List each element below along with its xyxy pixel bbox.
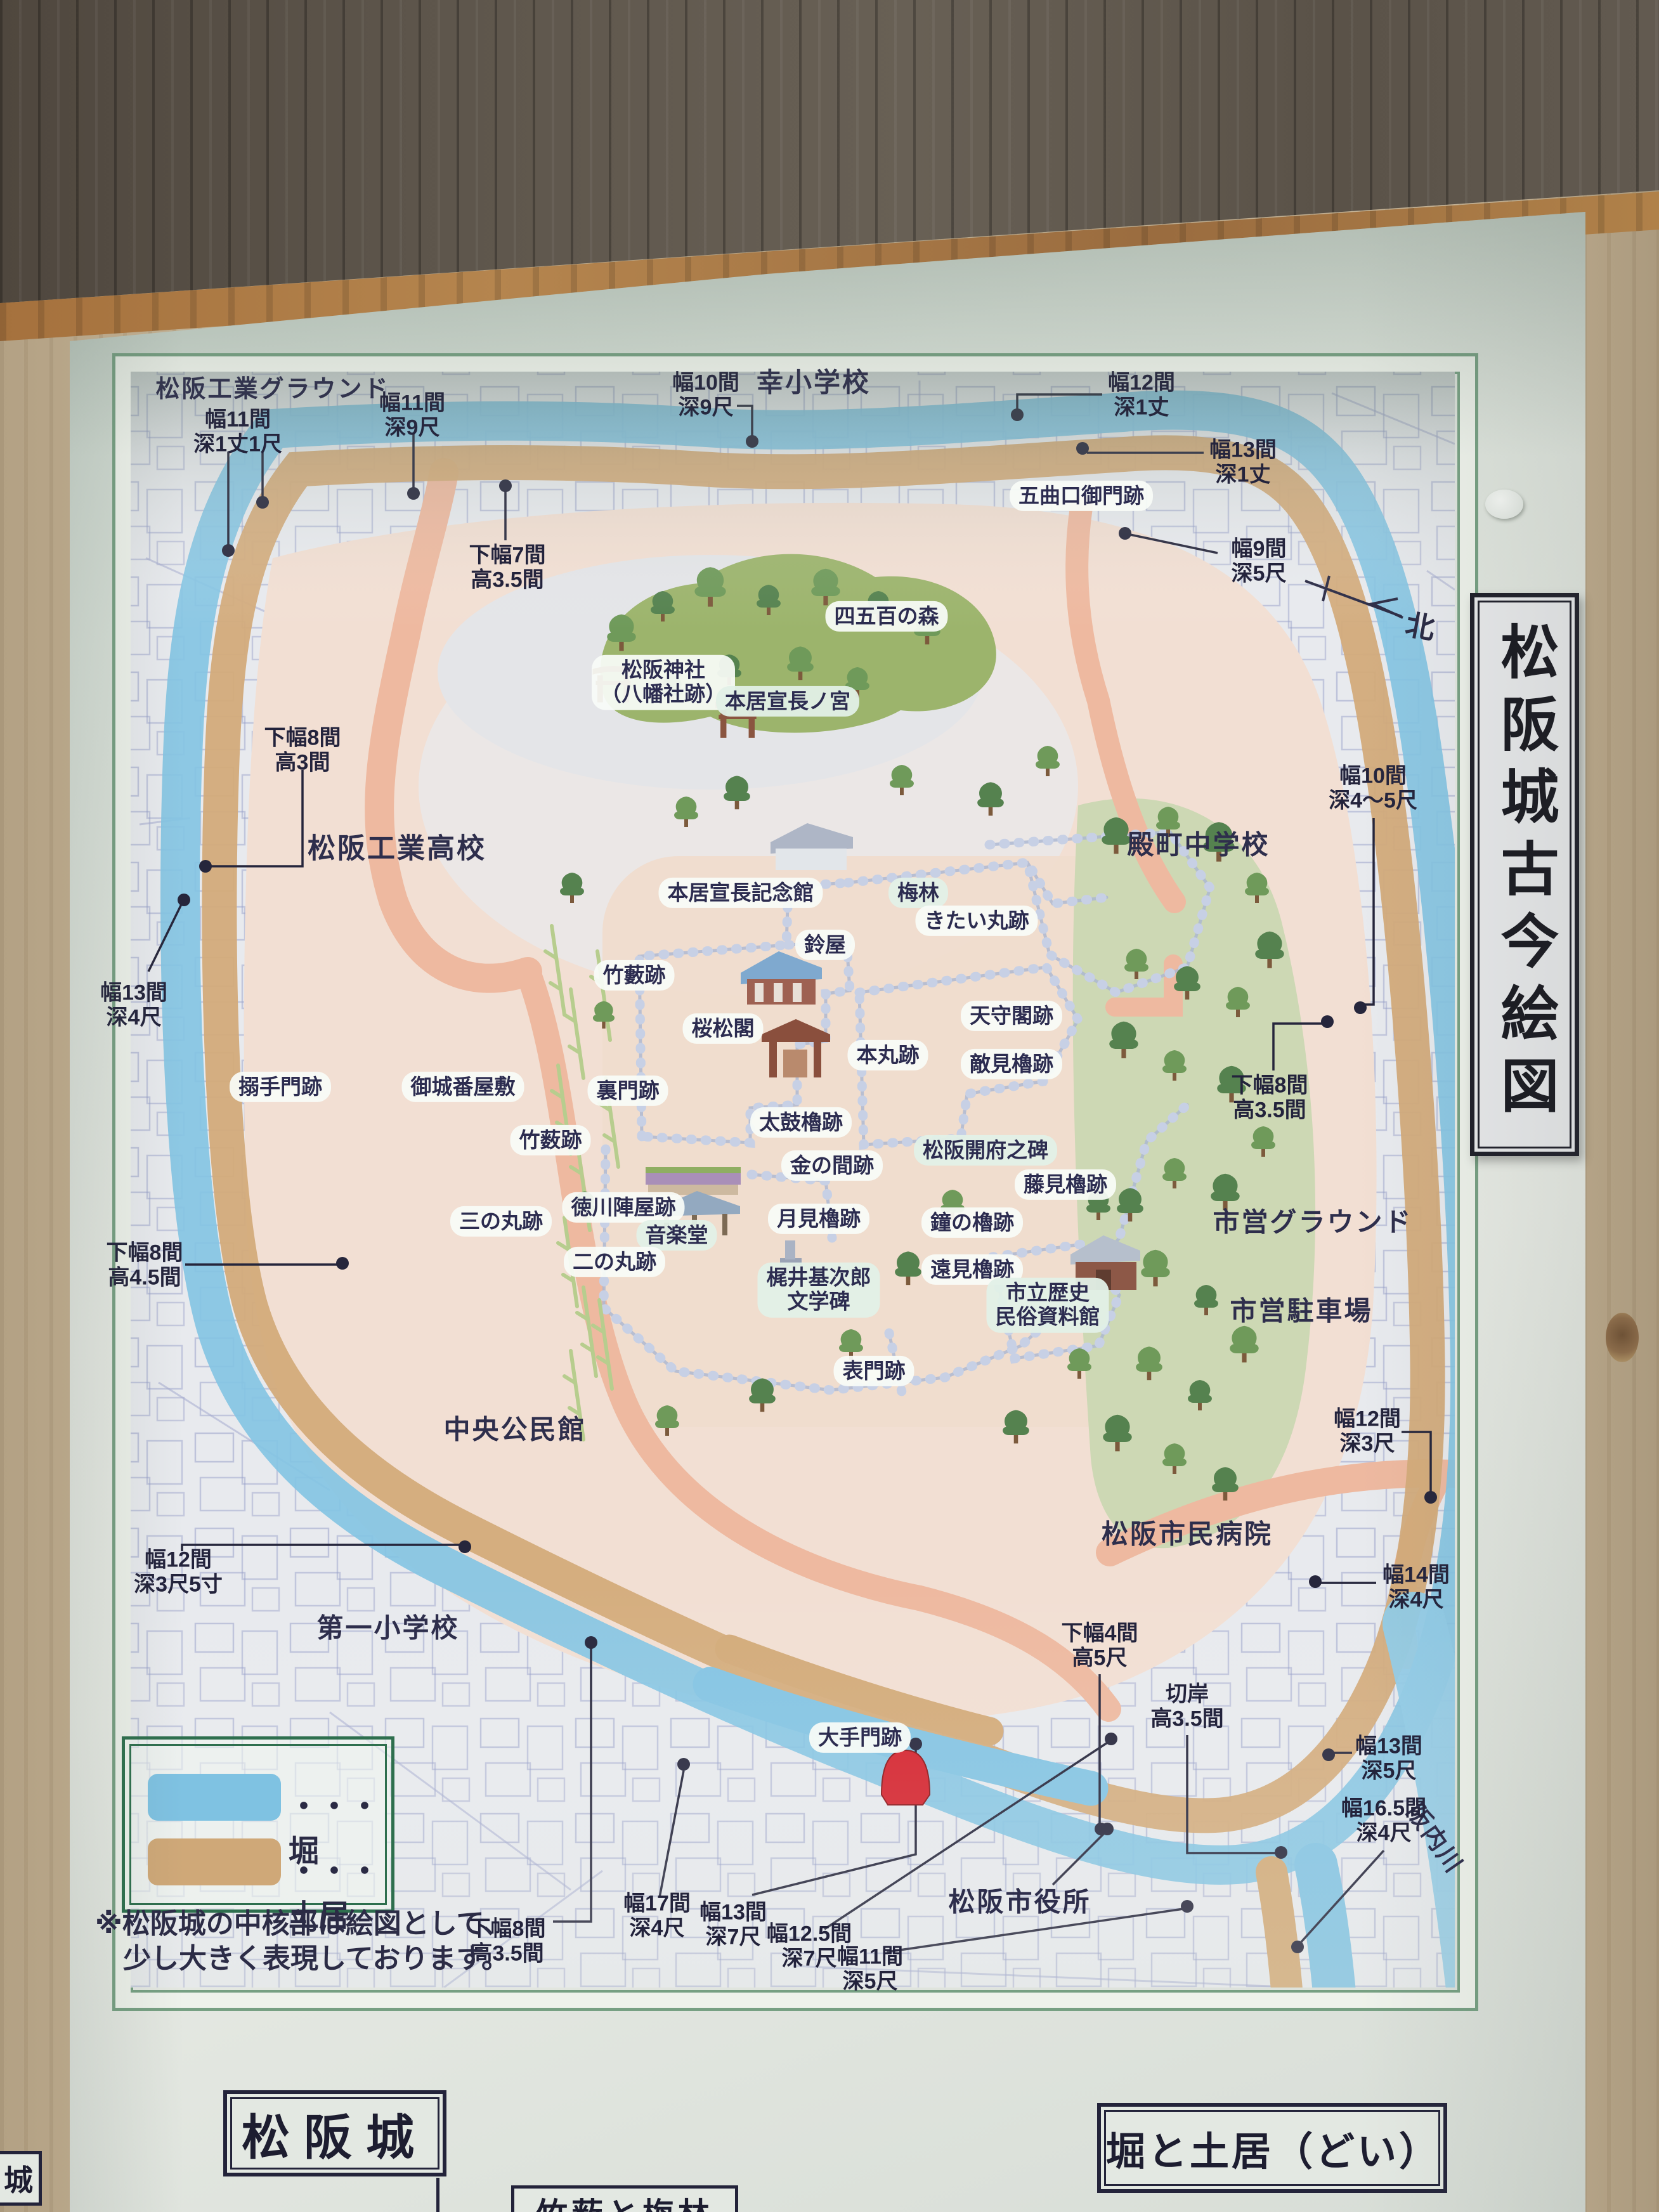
label-line: 深4尺 (623, 1916, 691, 1941)
measurement-label: 幅13間深5尺 (1355, 1734, 1422, 1785)
title-block: 松阪城古今絵図 (1470, 593, 1579, 1156)
measurement-label: 幅11間深9尺 (379, 391, 445, 441)
label-line: 幅11間 (837, 1945, 903, 1970)
label-line: 深3尺 (1334, 1432, 1401, 1457)
feature-label: 五曲口御門跡 (1010, 481, 1153, 511)
feature-label: 敵見櫓跡 (961, 1049, 1062, 1079)
feature-label: 金の間跡 (781, 1150, 883, 1181)
measurement-label: 下幅7間高3.5間 (469, 543, 546, 594)
measurement-label: 幅11間深1丈1尺 (193, 408, 282, 458)
label-line: 梶井基次郎 (767, 1266, 871, 1290)
label-line: 松阪神社 (601, 658, 726, 682)
note-line-2: 少し大きく表現しております。 (95, 1941, 511, 1976)
label-line: 音楽堂 (646, 1223, 708, 1247)
label-line: 藤見櫓跡 (1024, 1173, 1107, 1197)
label-line: 鈴屋 (804, 933, 846, 957)
label-line: 高3間 (264, 751, 341, 776)
label-line: 表門跡 (843, 1359, 906, 1383)
label-line: 幅12間 (134, 1548, 223, 1573)
label-line: 深3尺5寸 (134, 1573, 223, 1597)
label-line: 幅12間 (1108, 371, 1175, 396)
label-line: 深9尺 (379, 416, 445, 441)
label-line: 幅9間 (1232, 537, 1287, 562)
feature-label: 鐘の櫓跡 (921, 1207, 1023, 1238)
label-line: 幅11間 (193, 408, 282, 433)
feature-label: 天守閣跡 (961, 1001, 1062, 1031)
measurement-label: 幅12間深3尺5寸 (134, 1548, 223, 1598)
label-line: 深1丈 (1108, 396, 1175, 420)
panel-corner-fragment: 城 (0, 2151, 42, 2206)
feature-label: 四五百の森 (826, 601, 948, 632)
measurement-label: 幅9間深5尺 (1232, 537, 1287, 587)
feature-label: 三の丸跡 (450, 1206, 552, 1237)
label-line: 幅13間 (1209, 438, 1277, 463)
label-line: 深5尺 (1355, 1759, 1422, 1784)
label-line: 大手門跡 (818, 1726, 902, 1750)
label-line: 幅17間 (623, 1892, 691, 1916)
label-line: 深5尺 (1232, 562, 1287, 587)
title-inner-border: 松阪城古今絵図 (1478, 601, 1571, 1148)
label-line: 松阪開府之碑 (923, 1138, 1048, 1162)
label-line: 竹藪跡 (603, 963, 666, 987)
label-line: 三の丸跡 (459, 1209, 543, 1233)
label-line: 下幅8間 (264, 726, 341, 751)
label-line: 幅13間 (1355, 1734, 1422, 1759)
label-line: 深7尺 (699, 1925, 767, 1950)
label-line: 本居宣長ノ宮 (725, 689, 850, 713)
label-line: 第一小学校 (316, 1613, 459, 1644)
measurement-label: 幅10間深9尺 (672, 371, 739, 421)
panel-header-moat-doi-text: 堀と土居（どい） (1104, 2110, 1440, 2186)
label-line: 松阪市民病院 (1102, 1519, 1273, 1551)
feature-label: 徳川陣屋跡 (563, 1192, 685, 1223)
place-label: 中央公民館 (443, 1415, 586, 1446)
note-line-1: ※松阪城の中核部は絵図として、 (95, 1906, 511, 1941)
feature-label: 梶井基次郎文学碑 (758, 1263, 880, 1318)
legend-doi-swatch (148, 1838, 281, 1885)
label-line: 敵見櫓跡 (970, 1052, 1053, 1076)
feature-label: 藤見櫓跡 (1015, 1169, 1116, 1200)
measurement-label: 幅13間深4尺 (100, 981, 167, 1031)
measurement-label: 幅12間深3尺 (1334, 1407, 1401, 1457)
label-line: 深5尺 (837, 1970, 903, 1994)
feature-label: 裏門跡 (588, 1076, 668, 1106)
place-label: 市営駐車場 (1230, 1296, 1372, 1327)
legend-inner-border: ・・・堀 ・・・土居 (129, 1744, 387, 1905)
label-line: 幅11間 (379, 391, 445, 416)
label-line: 高3.5間 (469, 568, 546, 593)
label-line: 桜松閣 (692, 1017, 755, 1041)
label-line: 深4尺 (1341, 1821, 1426, 1846)
panel-divider (436, 2178, 439, 2212)
feature-label: 大手門跡 (809, 1722, 911, 1753)
label-line: 月見櫓跡 (777, 1207, 861, 1231)
label-line: 高5尺 (1062, 1646, 1138, 1671)
measurement-label: 下幅8間高3間 (264, 726, 341, 776)
feature-label: 梅林 (888, 878, 948, 908)
panel-header-bamboo-plum: 竹薮と梅林 (511, 2185, 738, 2212)
label-line: 松阪市役所 (948, 1887, 1091, 1918)
place-label: 殿町中学校 (1127, 830, 1270, 861)
label-line: 高3.5間 (1150, 1707, 1223, 1732)
feature-label: 竹薮跡 (511, 1125, 591, 1155)
label-line: 搦手門跡 (238, 1075, 322, 1099)
label-line: 金の間跡 (790, 1154, 874, 1178)
label-line: 下幅7間 (469, 543, 546, 568)
feature-label: 御城番屋敷 (402, 1072, 524, 1102)
label-line: 下幅4間 (1062, 1622, 1138, 1646)
label-line: 市営駐車場 (1230, 1296, 1372, 1327)
label-line: 本居宣長記念館 (668, 881, 814, 905)
label-line: 幅10間 (1329, 764, 1417, 789)
label-line: 殿町中学校 (1127, 830, 1270, 861)
label-line: （八幡社跡） (601, 682, 726, 706)
panel-header-moat-doi: 堀と土居（どい） (1097, 2103, 1447, 2193)
signboard-photo: 松阪工業グラウンド幸小学校殿町中学校松阪工業高校市営グラウンド市営駐車場松阪市民… (0, 0, 1659, 2212)
measurement-label: 幅16.5間深4尺 (1341, 1797, 1426, 1847)
label-line: 二の丸跡 (573, 1250, 656, 1274)
place-label: 松阪市役所 (948, 1887, 1091, 1918)
map-title: 松阪城古今絵図 (1495, 621, 1554, 1128)
label-line: 幅16.5間 (1341, 1797, 1426, 1821)
feature-label: 松阪開府之碑 (914, 1135, 1057, 1166)
label-line: 本丸跡 (857, 1043, 920, 1067)
label-line: 深4尺 (100, 1006, 167, 1031)
measurement-label: 幅13間深7尺 (699, 1901, 767, 1951)
label-line: 幅12.5間 (767, 1922, 852, 1947)
label-line: 松阪工業高校 (308, 832, 486, 864)
label-line: 深4尺 (1382, 1588, 1450, 1613)
measurement-label: 幅17間深4尺 (623, 1892, 691, 1942)
measurement-label: 幅14間深4尺 (1382, 1563, 1450, 1613)
place-label: 市営グラウンド (1213, 1207, 1412, 1239)
feature-label: 月見櫓跡 (768, 1204, 869, 1234)
feature-label: 鈴屋 (795, 930, 855, 960)
feature-label: 表門跡 (834, 1356, 914, 1386)
label-line: 徳川陣屋跡 (571, 1195, 676, 1220)
measurement-label: 幅10間深4～5尺 (1329, 764, 1417, 814)
label-line: 深1丈 (1209, 463, 1277, 488)
label-line: 幅12間 (1334, 1407, 1401, 1432)
feature-label: 太鼓櫓跡 (750, 1107, 852, 1138)
map-note: ※松阪城の中核部は絵図として、 少し大きく表現しております。 (95, 1906, 511, 1976)
panel-header-castle-text: 松阪城 (230, 2097, 439, 2170)
label-line: 梅林 (897, 881, 939, 905)
label-line: 裏門跡 (597, 1079, 660, 1103)
paper-grommet (1485, 490, 1523, 519)
label-line: 深4～5尺 (1329, 789, 1417, 814)
label-line: 五曲口御門跡 (1018, 484, 1144, 508)
label-line: 切岸 (1150, 1682, 1223, 1707)
label-line: 深9尺 (672, 396, 739, 420)
label-line: 下幅8間 (107, 1241, 183, 1266)
label-line: 幅13間 (100, 981, 167, 1006)
label-line: 天守閣跡 (970, 1004, 1053, 1028)
place-label: 第一小学校 (316, 1613, 459, 1644)
measurement-label: 下幅8間高3.5間 (1232, 1074, 1308, 1124)
measurement-label: 幅13間深1丈 (1209, 438, 1277, 488)
label-line: 中央公民館 (443, 1415, 586, 1446)
feature-label: 本居宣長記念館 (659, 878, 823, 908)
label-line: 幅14間 (1382, 1563, 1450, 1588)
label-line: 市立歴史 (996, 1281, 1100, 1305)
measurement-label: 幅12間深1丈 (1108, 371, 1175, 421)
feature-label: きたい丸跡 (916, 906, 1038, 936)
label-line: 幅13間 (699, 1901, 767, 1925)
legend-box: ・・・堀 ・・・土居 (122, 1736, 394, 1913)
label-line: 下幅8間 (1232, 1074, 1308, 1098)
measurement-label: 切岸高3.5間 (1150, 1682, 1223, 1733)
place-label: 松阪工業グラウンド (155, 375, 389, 403)
label-line: 高3.5間 (1232, 1098, 1308, 1123)
label-line: 太鼓櫓跡 (759, 1110, 843, 1135)
panel-header-castle: 松阪城 (223, 2090, 446, 2176)
label-line: 幅10間 (672, 371, 739, 396)
feature-label: 本居宣長ノ宮 (716, 686, 859, 717)
measurement-label: 下幅4間高5尺 (1062, 1622, 1138, 1672)
feature-label: 竹藪跡 (594, 960, 675, 991)
place-label: 松阪工業高校 (308, 832, 486, 864)
feature-label: 松阪神社（八幡社跡） (592, 655, 735, 710)
feature-label: 桜松閣 (683, 1013, 764, 1044)
feature-label: 市立歴史民俗資料館 (987, 1278, 1109, 1333)
label-line: 御城番屋敷 (411, 1075, 516, 1099)
place-label: 松阪市民病院 (1102, 1519, 1273, 1551)
feature-label: 二の丸跡 (564, 1247, 665, 1277)
label-line: 四五百の森 (835, 604, 939, 628)
measurement-label: 下幅8間高4.5間 (107, 1241, 183, 1291)
measurement-label: 幅11間深5尺 (837, 1945, 903, 1995)
place-label: 幸小学校 (757, 368, 871, 399)
feature-label: 本丸跡 (848, 1040, 928, 1070)
label-line: 高4.5間 (107, 1266, 183, 1291)
label-line: 深1丈1尺 (193, 433, 282, 457)
panel-header-bamboo-plum-text: 竹薮と梅林 (517, 2192, 732, 2212)
label-line: 幸小学校 (757, 368, 871, 399)
label-line: 文学碑 (767, 1290, 871, 1314)
legend-moat-swatch (148, 1774, 281, 1821)
panel-corner-fragment-text: 城 (1, 2157, 36, 2199)
label-line: 市営グラウンド (1213, 1207, 1412, 1239)
label-line: 松阪工業グラウンド (155, 375, 389, 403)
label-line: 鐘の櫓跡 (930, 1211, 1014, 1235)
feature-label: 搦手門跡 (230, 1072, 331, 1102)
label-line: きたい丸跡 (925, 909, 1029, 933)
label-line: 竹薮跡 (519, 1128, 582, 1152)
label-line: 民俗資料館 (996, 1305, 1100, 1329)
